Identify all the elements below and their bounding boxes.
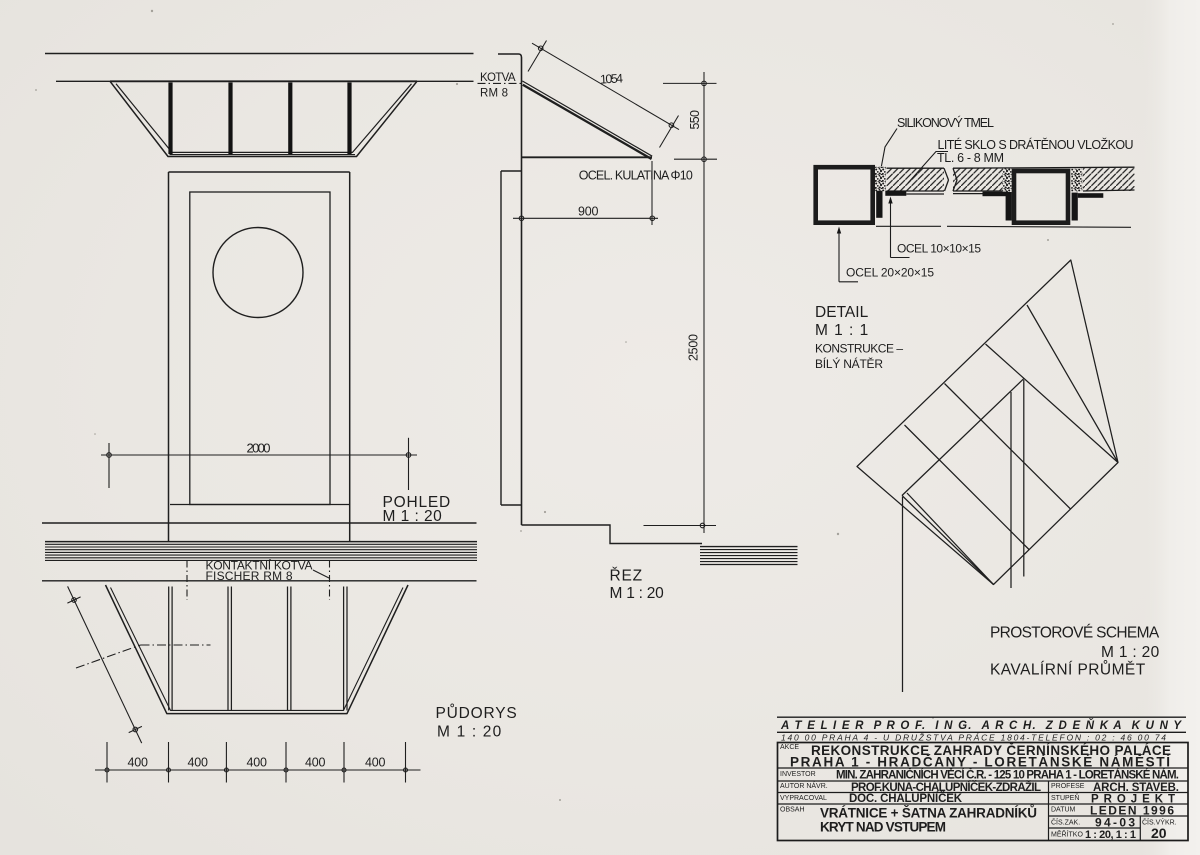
svg-text:550: 550 (688, 110, 702, 130)
svg-text:20: 20 (1151, 825, 1167, 841)
svg-text:400: 400 (365, 756, 386, 770)
svg-text:400: 400 (305, 756, 326, 770)
svg-text:PŮDORYS: PŮDORYS (436, 704, 518, 722)
svg-text:PROSTOROVÉ SCHEMA: PROSTOROVÉ SCHEMA (990, 625, 1160, 642)
svg-text:OCEL 10×10×15: OCEL 10×10×15 (897, 242, 981, 256)
svg-text:PROFESE: PROFESE (1051, 783, 1085, 790)
svg-text:M 1 : 20: M 1 : 20 (610, 585, 665, 602)
svg-text:INVESTOR: INVESTOR (780, 771, 816, 778)
svg-text:FISCHER RM 8: FISCHER RM 8 (206, 569, 293, 583)
svg-text:VYPRACOVAL: VYPRACOVAL (780, 795, 827, 802)
svg-text:MĚŘÍTKO: MĚŘÍTKO (1051, 830, 1083, 839)
svg-text:KRYT NAD VSTUPEM: KRYT NAD VSTUPEM (820, 820, 946, 835)
svg-text:DETAIL: DETAIL (815, 304, 869, 321)
svg-text:M 1 : 1: M 1 : 1 (815, 322, 869, 339)
svg-text:2500: 2500 (687, 334, 701, 361)
svg-text:AUTOR NÁVR.: AUTOR NÁVR. (780, 781, 828, 790)
svg-text:M 1 : 20: M 1 : 20 (383, 508, 443, 525)
svg-text:BÍLÝ NÁTĚR: BÍLÝ NÁTĚR (815, 356, 883, 371)
svg-text:VRÁTNICE + ŠATNA ZAHRADNÍKŮ: VRÁTNICE + ŠATNA ZAHRADNÍKŮ (820, 805, 1037, 821)
svg-text:KONSTRUKCE –: KONSTRUKCE – (815, 342, 903, 356)
svg-text:ŘEZ: ŘEZ (610, 568, 643, 585)
svg-text:94-03: 94-03 (1095, 816, 1135, 830)
svg-text:AKCE: AKCE (780, 744, 799, 751)
svg-text:A T E L I E R P R O F. I N G: A T E L I E R P R O F. I N G. A R C H. Z… (780, 719, 1182, 732)
svg-text:M 1 : 20: M 1 : 20 (437, 724, 502, 741)
svg-text:SILIKONOVÝ TMEL: SILIKONOVÝ TMEL (897, 115, 994, 130)
svg-text:ARCH. STAVEB.: ARCH. STAVEB. (1093, 782, 1179, 794)
svg-text:900: 900 (578, 205, 599, 219)
svg-text:STUPEŇ: STUPEŇ (1051, 793, 1079, 802)
svg-text:400: 400 (128, 756, 149, 770)
svg-text:MIN. ZAHRANIČNÍCH VĚCÍ Č.R. -: MIN. ZAHRANIČNÍCH VĚCÍ Č.R. - 125 10 PRA… (836, 769, 1179, 782)
svg-text:1054: 1054 (600, 71, 624, 86)
svg-text:DOC. CHALUPNÍČEK: DOC. CHALUPNÍČEK (849, 792, 963, 805)
svg-text:KOTVA: KOTVA (480, 72, 516, 84)
svg-text:2000: 2000 (247, 441, 271, 456)
svg-text:400: 400 (188, 756, 209, 770)
svg-text:TL. 6 - 8 MM: TL. 6 - 8 MM (937, 151, 1004, 165)
svg-text:LITÉ SKLO S DRÁTĚNOU VLOŽKOU: LITÉ SKLO S DRÁTĚNOU VLOŽKOU (938, 137, 1134, 152)
svg-text:OBSAH: OBSAH (780, 807, 805, 814)
svg-text:KAVALÍRNÍ PRŮMĚT: KAVALÍRNÍ PRŮMĚT (990, 661, 1146, 679)
svg-text:PRAHA 1 - HRADČANY - LORETÁNSK: PRAHA 1 - HRADČANY - LORETÁNSKÉ NÁMĚSTÍ (790, 755, 1171, 770)
svg-text:ČÍS.ZAK.: ČÍS.ZAK. (1051, 818, 1080, 827)
svg-text:400: 400 (247, 756, 268, 770)
svg-text:OCEL 20×20×15: OCEL 20×20×15 (846, 266, 934, 280)
svg-text:DATUM: DATUM (1051, 807, 1076, 814)
svg-text:1 : 20, 1 : 1: 1 : 20, 1 : 1 (1085, 829, 1136, 841)
svg-text:RM 8: RM 8 (480, 88, 508, 100)
svg-text:M 1 : 20: M 1 : 20 (1101, 644, 1160, 661)
svg-text:OCEL. KULATINA Φ10: OCEL. KULATINA Φ10 (579, 169, 693, 183)
svg-text:140 00 PRAHA 4 - U DRUŽSTVA PR: 140 00 PRAHA 4 - U DRUŽSTVA PRÁCE 1804-T… (781, 733, 1166, 743)
svg-text:ČÍS.VÝKR.: ČÍS.VÝKR. (1142, 818, 1177, 827)
